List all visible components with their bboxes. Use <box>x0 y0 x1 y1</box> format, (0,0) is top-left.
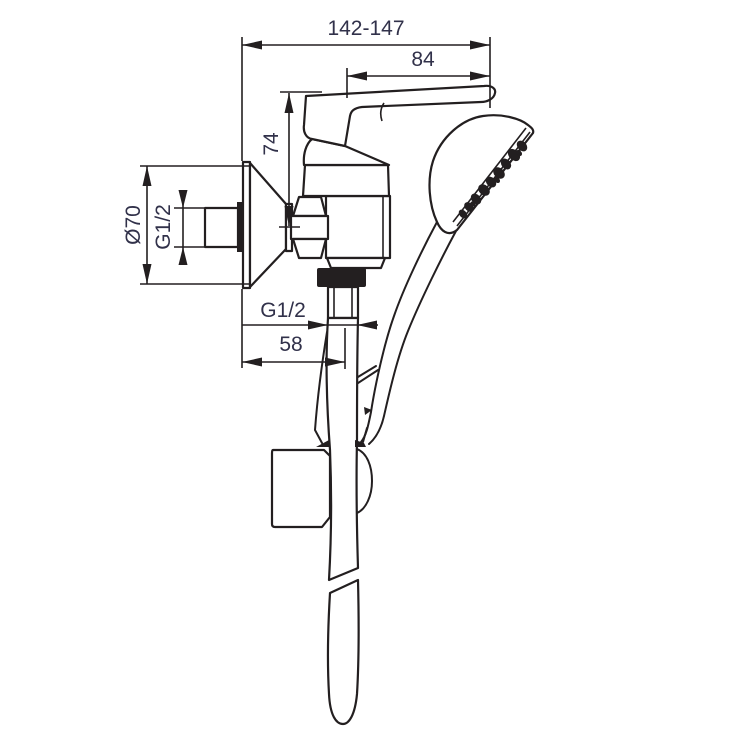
bracket-clip <box>316 440 329 447</box>
dimension-lever-height <box>285 93 294 226</box>
cartridge-body <box>303 165 389 196</box>
inlet-connector <box>205 208 238 247</box>
dimension-inlet-thread <box>179 190 188 265</box>
label-escutcheon-diameter: Ø70 <box>122 205 145 245</box>
technical-drawing-page: 142-147 84 74 Ø70 G1/2 G1/2 58 <box>0 0 736 744</box>
hose-lower-section <box>328 580 359 724</box>
hose-seal-ring <box>317 268 366 287</box>
label-lever-projection: 84 <box>411 48 435 71</box>
outlet-collar <box>327 258 385 268</box>
label-lever-height: 74 <box>260 132 283 156</box>
valve-body <box>326 196 390 258</box>
bracket-clamp-arc <box>357 449 372 513</box>
hose-upper-section <box>327 318 358 580</box>
label-outlet-offset: 58 <box>279 333 302 356</box>
dimension-lever-projection <box>347 72 490 81</box>
label-inlet-thread: G1/2 <box>152 204 175 250</box>
hose-nut <box>328 287 358 318</box>
label-outlet-thread: G1/2 <box>260 299 306 322</box>
shower-head <box>430 115 534 233</box>
label-total-depth: 142-147 <box>327 17 404 40</box>
escutcheon-cone <box>250 163 286 287</box>
dimension-outlet-offset <box>242 358 345 367</box>
shower-mixer-dimension-diagram: 142-147 84 74 Ø70 G1/2 G1/2 58 <box>0 0 736 744</box>
dimension-total-depth <box>242 41 490 50</box>
